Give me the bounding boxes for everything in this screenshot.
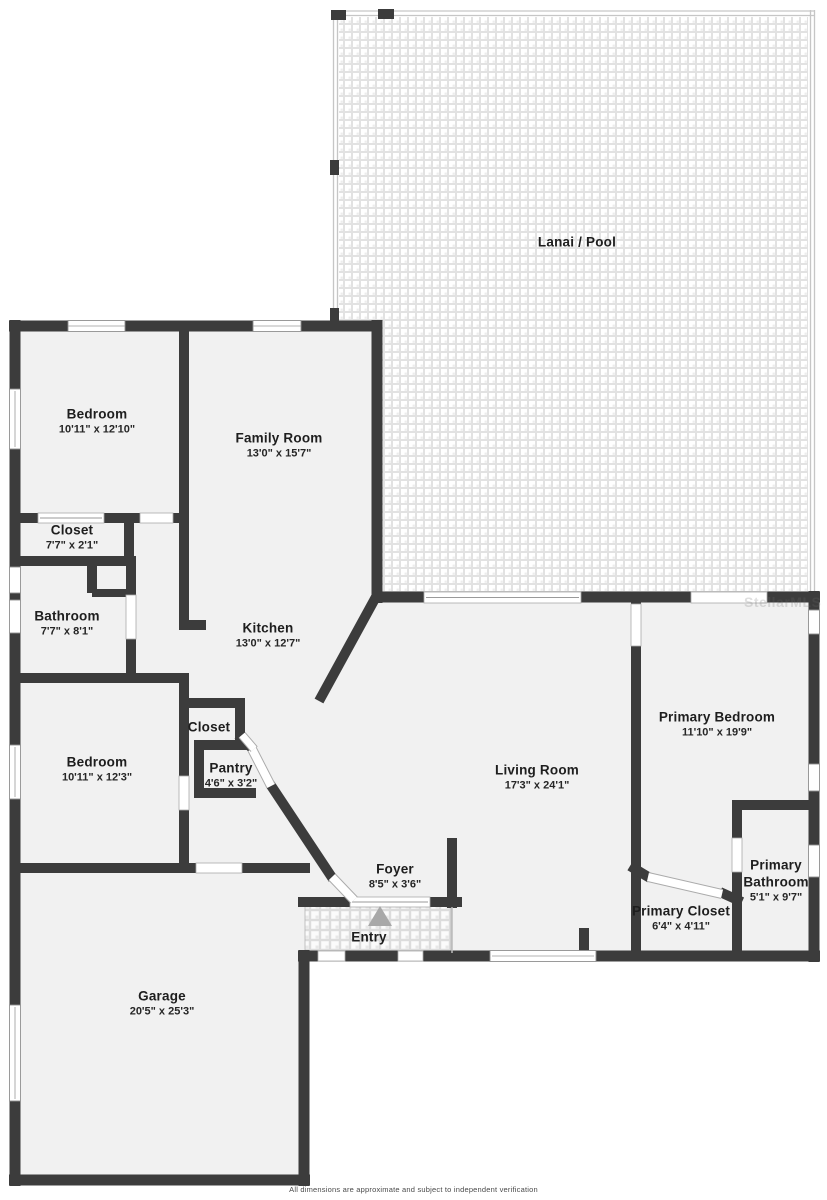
room-label-primary-closet: Primary Closet 6'4" x 4'11"	[632, 904, 730, 935]
room-name: Foyer	[369, 862, 421, 879]
room-name: Closet	[188, 720, 230, 737]
room-name: Bedroom	[59, 407, 135, 424]
room-name: Garage	[130, 989, 195, 1006]
room-label-kitchen: Kitchen 13'0" x 12'7"	[236, 621, 301, 652]
room-dimensions: 5'1" x 9'7"	[743, 891, 808, 905]
room-dimensions: 13'0" x 15'7"	[236, 448, 323, 462]
room-name: Bathroom	[34, 609, 99, 626]
room-label-pantry: Pantry 4'6" x 3'2"	[205, 761, 257, 792]
room-label-garage: Garage 20'5" x 25'3"	[130, 989, 195, 1020]
room-name: Closet	[46, 523, 98, 540]
room-label-lanai-pool: Lanai / Pool	[538, 235, 616, 252]
room-name: Bedroom	[62, 755, 132, 772]
room-label-bedroom-2: Bedroom 10'11" x 12'3"	[62, 755, 132, 786]
room-dimensions: 20'5" x 25'3"	[130, 1006, 195, 1020]
room-dimensions: 13'0" x 12'7"	[236, 638, 301, 652]
room-label-bedroom-1: Bedroom 10'11" x 12'10"	[59, 407, 135, 438]
room-dimensions: 10'11" x 12'3"	[62, 772, 132, 786]
disclaimer-text: All dimensions are approximate and subje…	[289, 1185, 538, 1194]
room-name: Lanai / Pool	[538, 235, 616, 252]
floor-plan: Lanai / Pool Bedroom 10'11" x 12'10" Fam…	[0, 0, 827, 1200]
room-dimensions: 7'7" x 2'1"	[46, 540, 98, 554]
room-label-primary-bathroom: Primary Bathroom 5'1" x 9'7"	[743, 857, 808, 905]
room-label-closet-1: Closet 7'7" x 2'1"	[46, 523, 98, 554]
room-dimensions: 17'3" x 24'1"	[495, 780, 579, 794]
room-label-foyer: Foyer 8'5" x 3'6"	[369, 862, 421, 893]
room-label-living-room: Living Room 17'3" x 24'1"	[495, 763, 579, 794]
room-label-family-room: Family Room 13'0" x 15'7"	[236, 431, 323, 462]
watermark: StellarMLS	[744, 594, 821, 610]
room-dimensions: 6'4" x 4'11"	[632, 921, 730, 935]
room-name: Entry	[351, 930, 387, 947]
room-dimensions: 10'11" x 12'10"	[59, 424, 135, 438]
room-name: Family Room	[236, 431, 323, 448]
room-label-primary-bedroom: Primary Bedroom 11'10" x 19'9"	[659, 710, 775, 741]
room-name: Primary Closet	[632, 904, 730, 921]
room-name: Living Room	[495, 763, 579, 780]
room-label-entry: Entry	[351, 930, 387, 947]
room-dimensions: 7'7" x 8'1"	[34, 626, 99, 640]
room-dimensions: 8'5" x 3'6"	[369, 879, 421, 893]
floor-plan-drawing	[0, 0, 827, 1200]
room-name: Pantry	[205, 761, 257, 778]
room-name: Primary Bathroom	[743, 857, 808, 891]
room-name: Primary Bedroom	[659, 710, 775, 727]
room-name: Kitchen	[236, 621, 301, 638]
room-dimensions: 4'6" x 3'2"	[205, 778, 257, 792]
room-label-bathroom: Bathroom 7'7" x 8'1"	[34, 609, 99, 640]
lanai-floor-texture	[339, 17, 808, 592]
room-dimensions: 11'10" x 19'9"	[659, 727, 775, 741]
room-label-closet-2: Closet	[188, 720, 230, 737]
